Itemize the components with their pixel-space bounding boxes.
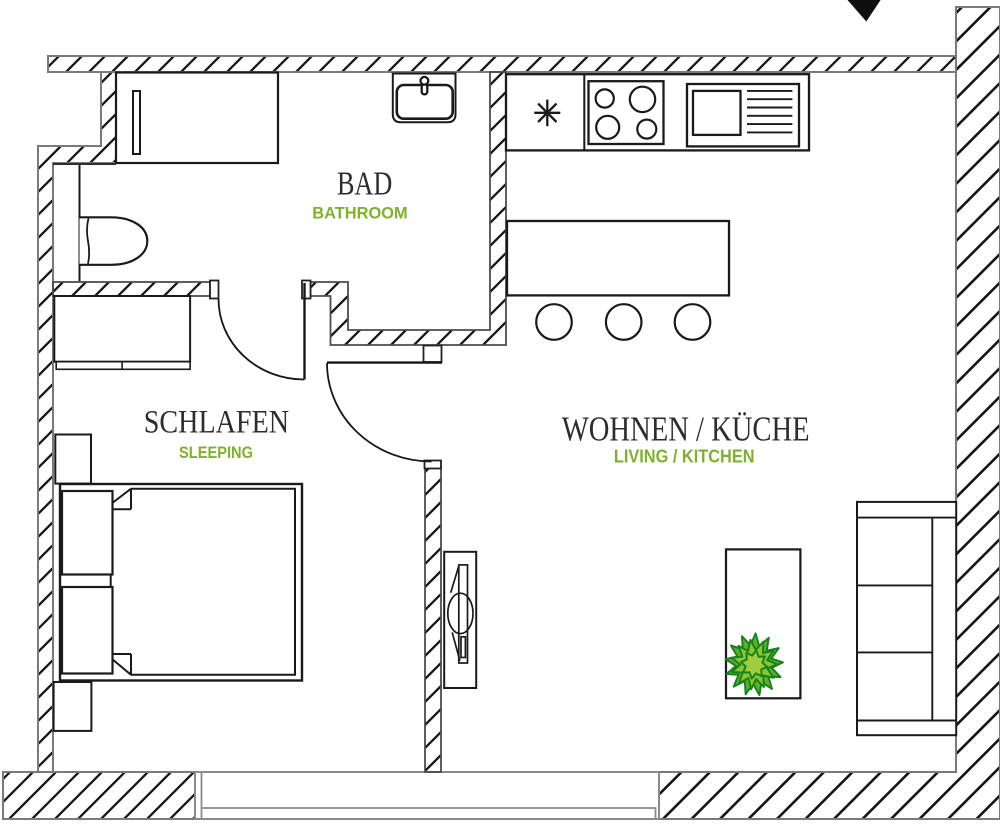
svg-text:SLEEPING: SLEEPING [179,443,253,462]
svg-text:LIVING / KITCHEN: LIVING / KITCHEN [614,446,755,466]
svg-text:WOHNEN / KÜCHE: WOHNEN / KÜCHE [562,410,810,449]
svg-text:BATHROOM: BATHROOM [312,204,408,223]
svg-text:BAD: BAD [337,165,392,202]
svg-text:SCHLAFEN: SCHLAFEN [144,405,289,441]
